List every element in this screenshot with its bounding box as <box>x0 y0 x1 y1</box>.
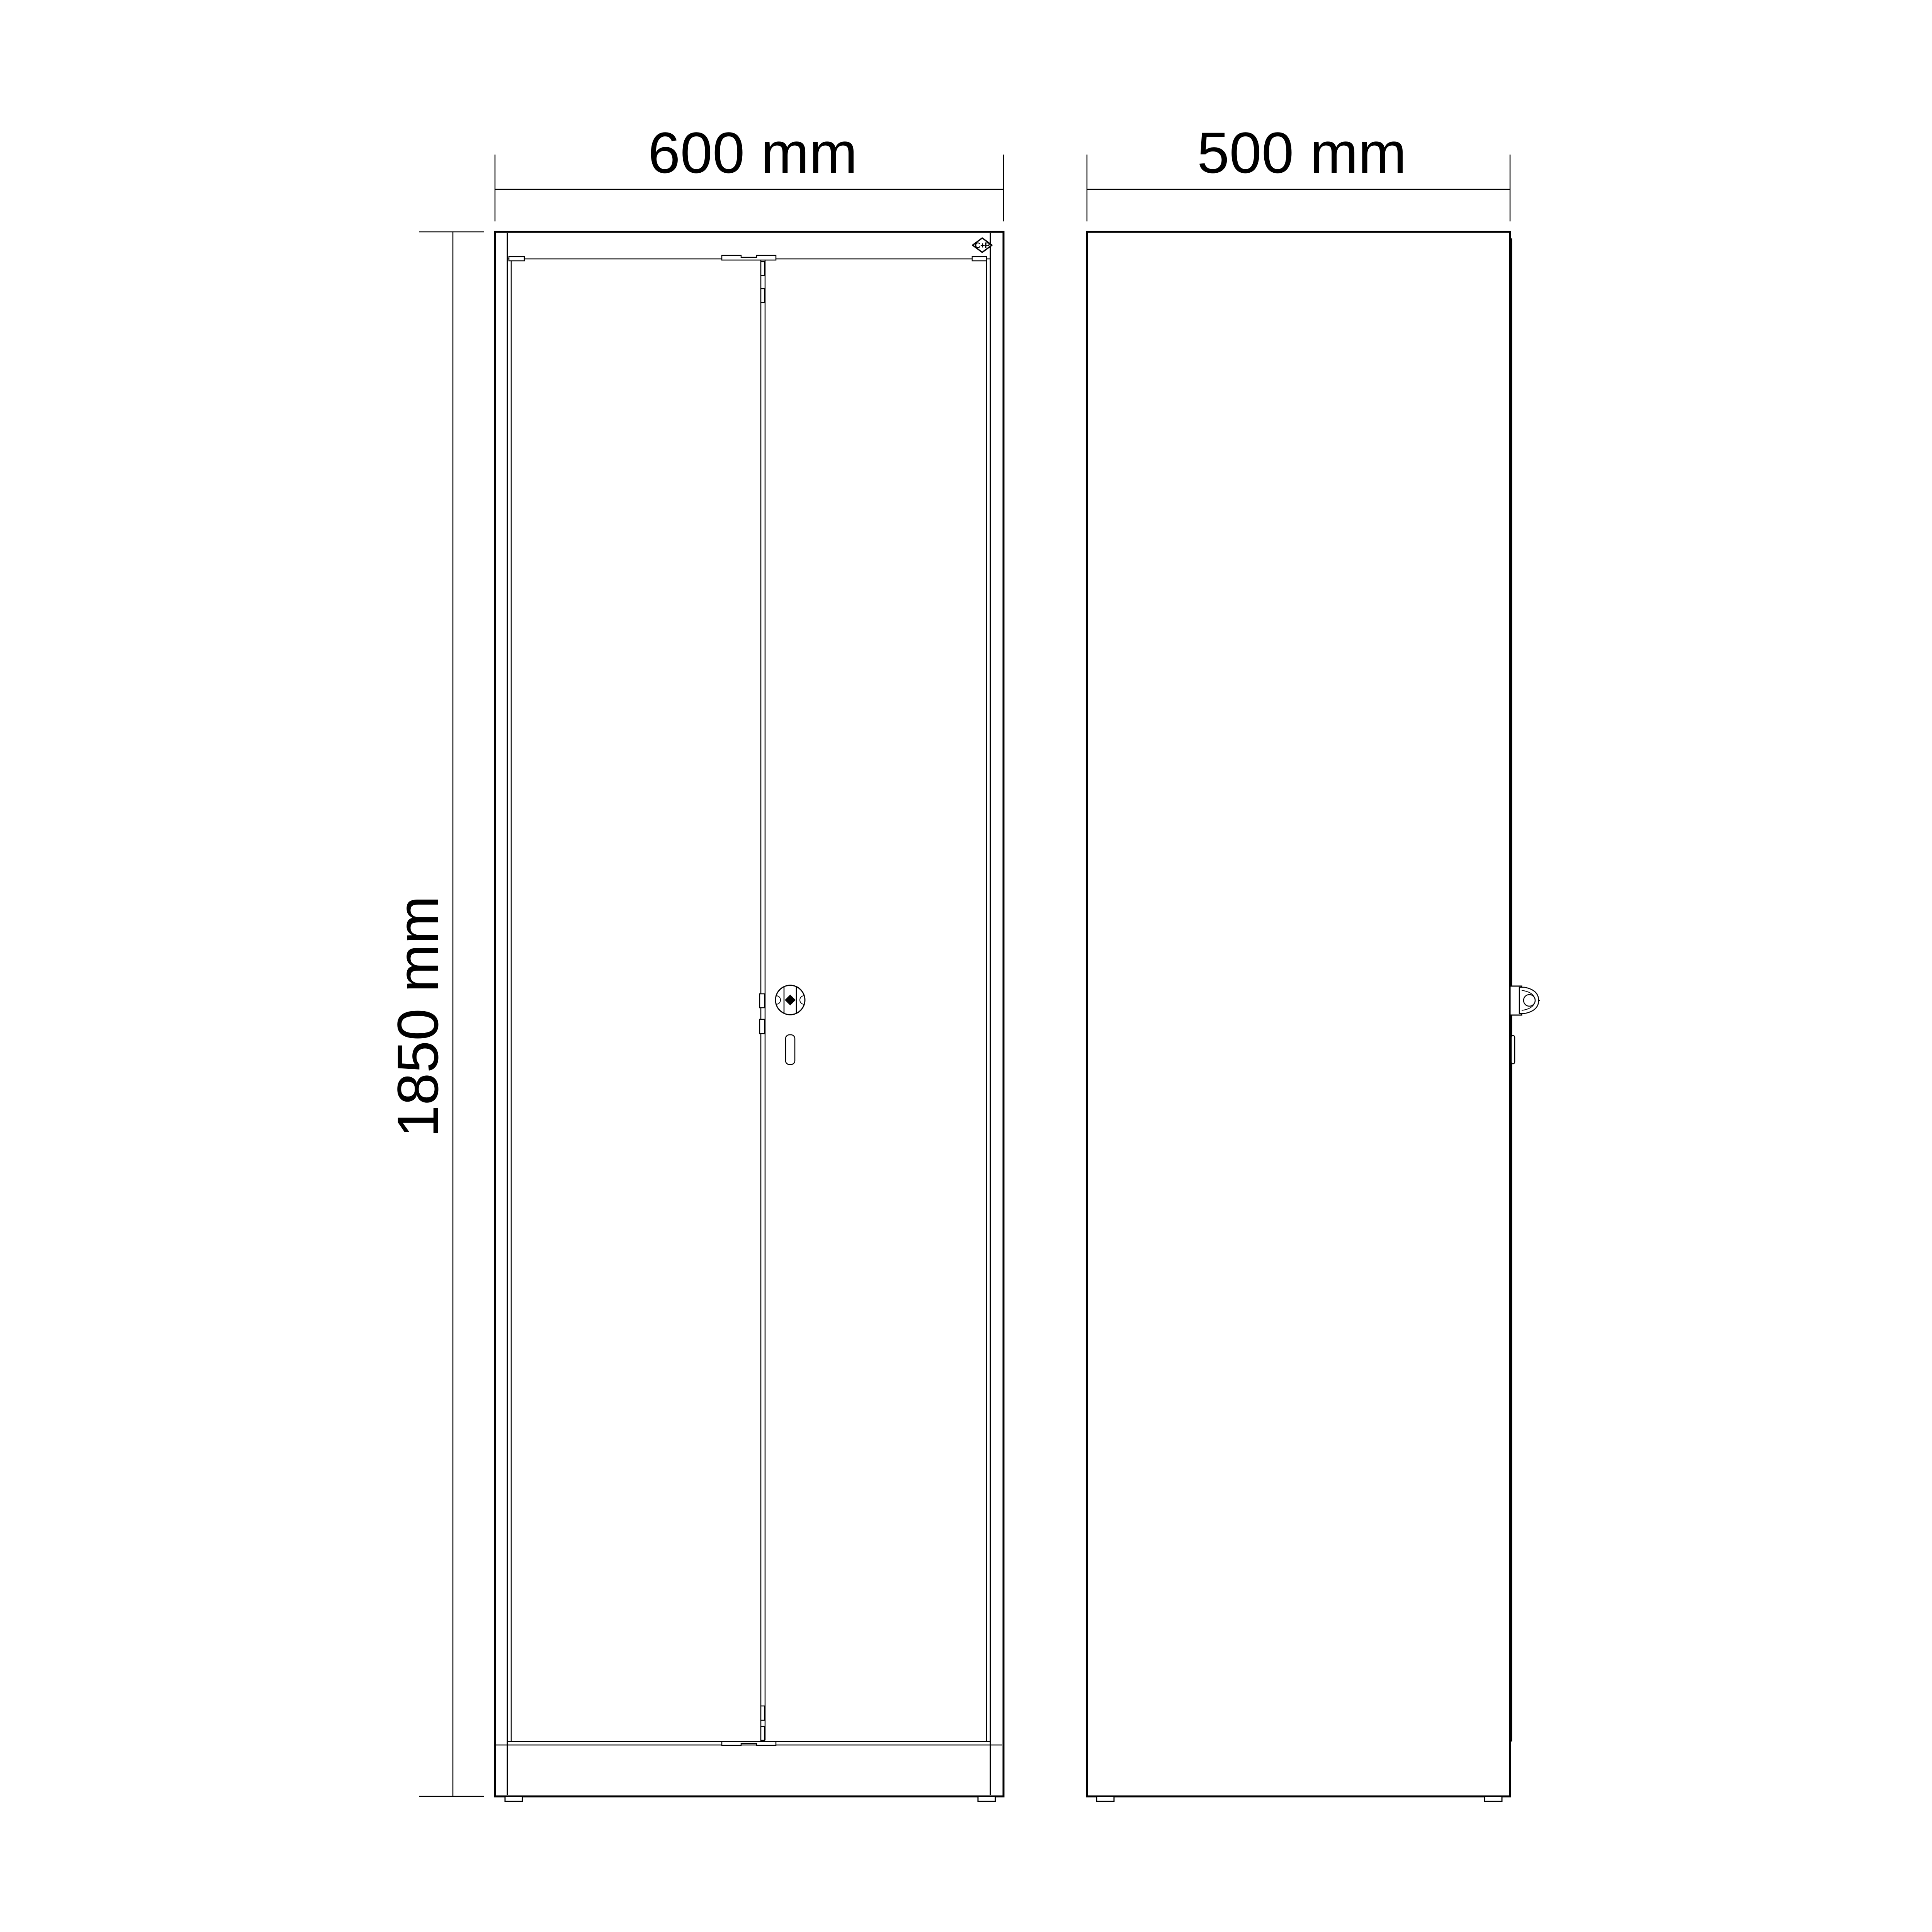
drawing-canvas: C+P <box>0 0 1932 1932</box>
front-bottom-hinge-plate-2 <box>761 1726 765 1740</box>
front-top-hinge-plate-1 <box>761 262 765 276</box>
side-lock-knob <box>1510 986 1540 1015</box>
side-depth-label: 500 mm <box>1197 120 1406 185</box>
front-top-left-corner-tab <box>509 257 524 261</box>
front-top-hinge-plate-2 <box>761 289 765 303</box>
front-width-label: 600 mm <box>648 120 857 185</box>
front-top-right-corner-tab <box>972 257 986 261</box>
cp-logo-text: C+P <box>975 241 990 250</box>
side-right-foot <box>1485 1796 1502 1801</box>
side-handle-slot-profile <box>1511 1036 1515 1064</box>
side-left-foot <box>1097 1796 1114 1801</box>
front-lock <box>776 985 805 1015</box>
side-cabinet-outline <box>1087 232 1510 1796</box>
front-left-foot <box>505 1796 522 1801</box>
front-lock-keep-lower <box>760 1019 765 1034</box>
front-right-foot <box>978 1796 995 1801</box>
side-knob-cylinder <box>1524 995 1535 1006</box>
linework: C+P <box>419 155 1540 1801</box>
technical-drawing-locker: C+P <box>0 0 1932 1932</box>
front-handle-slot <box>786 1035 795 1065</box>
front-lock-keep-upper <box>760 994 765 1008</box>
front-cabinet-outline <box>495 232 1003 1796</box>
front-height-label: 1850 mm <box>385 896 450 1137</box>
front-bottom-hinge-plate-1 <box>761 1706 765 1720</box>
front-view: C+P <box>495 232 1003 1801</box>
side-view <box>1087 232 1540 1801</box>
